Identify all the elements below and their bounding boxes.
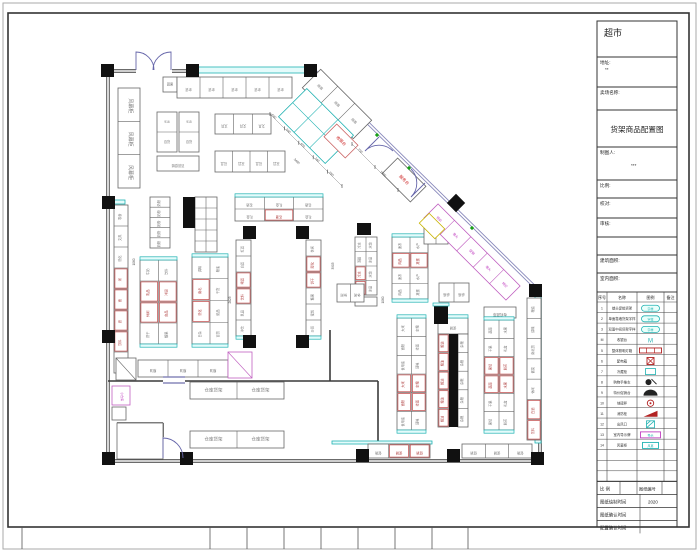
legend-header: 备注 — [667, 294, 675, 300]
shelf-label: 乳品 — [240, 310, 245, 316]
shelf-label: 食品 — [164, 311, 169, 317]
shelf-label: 粮油 — [440, 360, 445, 366]
legend-no: 3 — [601, 328, 603, 332]
shelf-label: 礼盒 — [503, 345, 508, 352]
legend-no: 8 — [601, 380, 603, 384]
shelf-block: 百货促销 — [157, 156, 199, 171]
shelf-label: 休闲 — [310, 246, 315, 252]
shelf-label: 调味 — [197, 265, 202, 272]
shelf-label: 大米 — [400, 325, 405, 332]
shelf-label: 面粉 — [400, 343, 405, 350]
shelf-label: 乳品 — [145, 290, 150, 296]
structural-column — [180, 452, 193, 465]
shelf-label: 肉品 — [397, 258, 402, 264]
shelf-label: 饮料 — [240, 293, 245, 300]
shelf-block: 促销促销促销 — [462, 444, 532, 458]
field-value: ** — [605, 67, 609, 72]
shelf-label: 杂货 — [185, 88, 191, 93]
shelf-label: 玩具 — [237, 162, 244, 167]
dimension-text: 730 — [357, 147, 364, 154]
legend-name: 消防栓 — [617, 411, 628, 416]
shelf-label: 奶粉 — [156, 220, 161, 227]
shelf-label: 调味 — [415, 362, 420, 369]
shelf-label: 休闲 — [354, 293, 360, 298]
structural-column — [296, 226, 309, 239]
shelf-label: 礼盒 — [246, 215, 253, 220]
shelf-block: 粮油调味南北货酱菜休闲白酒饮料 — [527, 298, 541, 440]
shelf-label: 奶粉 — [156, 199, 161, 206]
shelf-label: 桌椅 — [443, 293, 450, 298]
wall-shelf-band — [197, 67, 305, 73]
shelf-label: 促销 — [395, 451, 402, 456]
door-swing — [136, 52, 154, 70]
legend-name: 特价促销台 — [614, 390, 632, 395]
shelf-block: 粮油粮油粮油粮油粮油 — [438, 334, 449, 427]
legend-no: 7 — [601, 370, 603, 374]
shelf-label: 百货促销 — [171, 164, 185, 169]
shelf-label: 杂粮 — [459, 378, 464, 385]
legend-no: 12 — [600, 423, 604, 427]
shelf-label: 礼盒 — [275, 203, 282, 208]
legend-no: 13 — [600, 433, 604, 437]
legend-name: 室内导示牌 — [614, 432, 632, 437]
shelf-label: 杂粮 — [459, 359, 464, 366]
field-label: 校对: — [600, 200, 610, 207]
shelf-label: 休闲 — [530, 387, 535, 393]
legend-no: 1 — [601, 307, 603, 311]
structural-column — [102, 196, 115, 209]
shelf-label: 饼干 — [145, 331, 150, 338]
structural-column — [531, 452, 544, 465]
legend-no: 5 — [601, 349, 603, 353]
shelf-block: 奶粉奶粉奶粉奶粉奶粉 — [150, 197, 170, 248]
legend-sym-cart — [646, 379, 652, 385]
shelf-block: 红酒白酒啤酒饮料乳品冲饮 — [236, 240, 251, 339]
shelf-block: 仓库货架仓库货架 — [190, 382, 284, 399]
shelf-block — [116, 358, 136, 380]
structural-column — [243, 335, 256, 348]
shelf-label: 粮油 — [440, 379, 445, 385]
drawing-title: 货架商品配置图 — [610, 124, 663, 134]
dimension-text: 3480 — [293, 157, 301, 165]
legend-sym-wedge — [644, 411, 658, 417]
shelf-label: 桌椅 — [458, 293, 465, 298]
tiny-label: 字样 — [647, 306, 653, 311]
shelf-block: 休闲膨化饼干糖果蜜饯炒货 — [306, 240, 321, 339]
legend-no: 14 — [600, 444, 604, 448]
shelf-label: 杂货 — [254, 88, 260, 93]
tiny-label: 导示 — [647, 432, 653, 437]
shelf-block: 服务台 — [382, 158, 426, 202]
endcap — [392, 299, 428, 302]
shelf-block: 粮油粮油粮油 — [138, 360, 228, 377]
structural-column — [447, 449, 460, 462]
endcap — [484, 430, 514, 433]
legend-table: 序号名称图例备注1端头促销货架字样2单面靠墙货架字样字样3双面中间货架字样字样M… — [597, 292, 677, 533]
shelf-label: 水果 — [503, 381, 508, 388]
shelf-label: 水饺 — [368, 270, 373, 277]
shelf-label: 面粉 — [400, 399, 405, 406]
shelf-label: 糖果 — [310, 293, 315, 300]
endcap — [397, 430, 426, 433]
structural-column — [356, 449, 369, 462]
shelf-label: 促销 — [374, 451, 381, 456]
shelf-label: 奶粉 — [156, 240, 161, 247]
shelf-block: 特价堆头促销堆头特价 — [424, 204, 520, 300]
structural-column — [304, 64, 317, 77]
shelf-label: 洗化 — [117, 255, 122, 262]
door-swing — [153, 52, 171, 70]
shelf-label: 纸品 — [215, 309, 220, 315]
shelf-label: 鲜花 — [503, 418, 508, 425]
legend-name: 双面中间货架字样 — [608, 327, 636, 332]
shelf-label: 杂货 — [277, 88, 283, 93]
legend-sym-m: M — [648, 338, 653, 344]
shelf-label: 速冻 — [397, 273, 402, 280]
shelf-label: 916 — [164, 120, 170, 124]
shelf-label: 禽蛋 — [415, 257, 420, 264]
shelf-label: 冲饮 — [240, 325, 245, 332]
sheet-no-label: 图纸编号 — [639, 485, 656, 492]
structural-column — [186, 64, 199, 77]
shelf-label: 粮油 — [215, 266, 220, 272]
shelf-label: 风幕柜 — [127, 165, 134, 180]
legend-no: 11 — [600, 412, 604, 416]
endcap — [235, 194, 323, 197]
endcap — [140, 344, 177, 347]
legend-header: 序号 — [598, 294, 606, 300]
shelf-label: 礼盒 — [503, 400, 508, 407]
shelf-label: 饮料 — [117, 339, 122, 346]
structural-column — [102, 452, 115, 465]
shelf-outline — [112, 407, 126, 420]
floor-plan: 蔬果杂货杂货杂货杂货杂货916百货915百货百货促销文具文具文具玩具玩具玩具玩具… — [101, 52, 544, 465]
field-label: 建筑面积: — [600, 257, 620, 264]
shelf-block: 风幕柜风幕柜风幕柜 — [118, 88, 140, 188]
shelf-outline — [138, 360, 228, 377]
legend-name: 端头促销货架 — [612, 306, 633, 311]
shelf-block: 休闲休闲 — [337, 284, 364, 302]
legend-sym-lightbox — [640, 348, 662, 353]
endcap — [192, 344, 228, 347]
shelf-label: 休闲 — [145, 311, 150, 317]
endcap — [192, 254, 228, 257]
legend-name: 整体照明灯箱 — [612, 348, 633, 353]
shelf-label: 冰品 — [368, 257, 373, 263]
shelf-block: 文具文具文具 — [215, 114, 271, 134]
shelf-label: 杂粮 — [459, 415, 464, 422]
freezer-bar — [449, 334, 458, 427]
shelf-label: 文具 — [258, 124, 265, 129]
shelf-label: 白酒 — [240, 261, 245, 268]
legend-name: 配电箱 — [617, 358, 628, 363]
shelf-label: 速冻 — [397, 242, 402, 249]
structural-column-diamond — [447, 194, 465, 212]
shelf-block: 杂货杂货杂货杂货杂货 — [177, 77, 292, 98]
shelf-block: 调味粮油南北干货洗化纸品日杂百货 — [192, 254, 228, 347]
shelf-label: 小仓库 — [120, 392, 125, 401]
shelf-label: 杂粮 — [459, 396, 464, 403]
shelf-block: 大米杂粮面粉挂面食用油调味大米杂粮面粉挂面食用油调味 — [397, 315, 426, 433]
shelf-label: 百货 — [215, 331, 220, 337]
freezer-bar — [183, 197, 195, 228]
shelf-label: 水产 — [415, 243, 420, 249]
shelf-label: 饮料 — [530, 427, 535, 434]
shelf-label: 915 — [186, 120, 192, 124]
shelf-label: 红酒 — [240, 245, 245, 252]
shelf-label: 文具 — [117, 234, 122, 241]
shelf-label: 南北货 — [530, 345, 535, 355]
shelf-block — [117, 423, 163, 459]
shelf-label: 肉品 — [397, 289, 402, 295]
field-label: 制图人: — [600, 149, 615, 156]
shelf-label: 粮油 — [440, 397, 445, 403]
shelf-label: 风幕柜 — [127, 132, 134, 147]
shelf-block: 蔬菜水果干果礼盒果切鲜花蔬菜水果干果礼盒果切鲜花 — [484, 317, 514, 433]
shelf-block: 速冻水产肉品禽蛋速冻水产肉品禽蛋 — [392, 234, 428, 302]
shelf-label: 调味 — [530, 326, 535, 333]
shelf-label: 牛奶 — [145, 269, 150, 275]
store-name: 超市 — [604, 27, 622, 38]
shelf-block — [228, 352, 252, 378]
shelf-block: 916百货 — [157, 112, 177, 152]
legend-name: 单面靠墙货架字样 — [608, 316, 636, 321]
shelf-label: 玩具 — [255, 162, 262, 167]
shelf-label: 炒货 — [310, 326, 315, 332]
footer-label: 配置确认时间 — [600, 524, 626, 531]
shelf-label: 名酒 — [275, 215, 282, 220]
legend-name: 出风口 — [617, 422, 627, 427]
shelf-label: 干果 — [488, 345, 493, 352]
shelf-label: 大米 — [400, 381, 405, 388]
shelf-label: 促销 — [470, 451, 477, 456]
shelf-label: 饮料 — [164, 268, 169, 275]
shelf-label: 挂面 — [415, 400, 420, 406]
shelf-block: 仓库货架仓库货架 — [190, 431, 284, 448]
structural-column — [296, 335, 309, 348]
shelf-label: 日杂 — [197, 330, 202, 337]
dimension-text: 3905 — [331, 262, 335, 269]
shelf-label: 面 — [118, 299, 122, 302]
shelf-label: 粮油 — [180, 369, 186, 374]
shelf-label: 杂粮 — [415, 325, 420, 332]
endcap — [397, 315, 426, 318]
footer-value: 2020 — [648, 499, 658, 504]
shelf-label: 冷冻 — [357, 270, 362, 277]
legend-name: 冷藏柜 — [617, 369, 628, 374]
legend-no: 2 — [601, 317, 603, 321]
shelf-label: 礼盒 — [304, 215, 311, 220]
legend-no: M — [601, 338, 604, 342]
shelf-outline — [157, 156, 199, 171]
shelf-label: 水饺 — [368, 241, 373, 248]
shelf-label: 促销 — [449, 326, 456, 331]
shelf-label: 促销 — [416, 451, 423, 456]
shelf-label: 食用油 — [400, 361, 405, 371]
shelf-label: 鲜花 — [503, 363, 508, 370]
dimension-text: 1060 — [381, 296, 385, 303]
field-value: *** — [631, 163, 637, 168]
shelf-label: 杂货 — [231, 88, 237, 93]
shelf-label: 杂货 — [208, 88, 214, 93]
shelf-label: 名酒 — [246, 203, 253, 208]
shelf-label: 仓库货架 — [252, 387, 270, 394]
field-label: 地址: — [600, 59, 610, 65]
endcap — [392, 234, 428, 237]
shelf-label: 促销 — [516, 451, 523, 456]
shelf-label: 禽蛋 — [415, 288, 420, 295]
shelf-label: 糖果 — [164, 331, 169, 338]
drawing-sheet: 蔬果杂货杂货杂货杂货杂货916百货915百货百货促销文具文具文具玩具玩具玩具玩具… — [0, 0, 700, 555]
shelf-label: 粮油 — [210, 369, 216, 374]
shelf-block — [112, 407, 126, 420]
shelf-label: 仓库货架 — [252, 436, 270, 443]
field-label: 审核: — [600, 220, 610, 227]
shelf-label: 调味 — [415, 418, 420, 425]
shelf-label: 果切 — [488, 419, 493, 425]
shelf-block: 牛奶饮料乳品冲调休闲食品饼干糖果 — [140, 257, 177, 347]
legend-sym-dome — [644, 390, 658, 396]
shelf-block: 玩具玩具玩具玩具 — [215, 151, 285, 172]
shelf-label: 冲调 — [164, 290, 169, 296]
shelf-block: 名酒礼盒名酒礼盒名酒礼盒 — [235, 194, 323, 221]
shelf-label: 玩具 — [272, 162, 279, 167]
shelf-label: 杂粮 — [459, 341, 464, 348]
structural-column — [434, 306, 448, 324]
shelf-label: 果切 — [488, 364, 493, 370]
shelf-label: 膨化 — [310, 261, 315, 268]
shelf-label: 蔬果 — [167, 82, 174, 87]
endcap — [140, 257, 177, 260]
shelf-label: 杂粮 — [415, 381, 420, 388]
shelf-block: 零食文具洗化米面酒饮料日配 — [114, 205, 128, 373]
legend-no: 9 — [601, 391, 603, 395]
shelf-label: 冰品 — [368, 286, 373, 292]
shelf-label: 玩具 — [220, 162, 227, 167]
shelf-block: 有机蔬菜 — [484, 307, 516, 318]
shelf-label: 休闲 — [341, 293, 347, 298]
legend-sym-coldbox — [646, 369, 656, 375]
shelf-label: 百货 — [186, 139, 192, 144]
structural-column — [529, 284, 542, 297]
column-cap — [433, 303, 449, 306]
freezer-bar — [357, 223, 371, 235]
shelf-label: 酱菜 — [530, 366, 535, 373]
dimension-text: 650 — [328, 171, 335, 178]
shelf-label: 干果 — [488, 400, 493, 407]
shelf-label: 汤圆 — [357, 257, 362, 263]
inner-border — [8, 13, 689, 527]
shelf-label: 白酒 — [530, 407, 535, 414]
sheet-canvas: 蔬果杂货杂货杂货杂货杂货916百货915百货百货促销文具文具文具玩具玩具玩具玩具… — [0, 0, 700, 555]
shelf-block: 小仓库 — [112, 386, 130, 405]
legend-no: 10 — [600, 402, 604, 406]
shelf-label: 奶粉 — [156, 210, 161, 217]
shelf-block: 915百货 — [179, 112, 199, 152]
shelf-label: 零食 — [117, 213, 122, 220]
shelf-label: 仓库货架 — [205, 436, 223, 443]
structural-column — [102, 330, 115, 343]
tiny-label: 风幕 — [647, 443, 653, 448]
shelf-label: 粮油 — [440, 341, 445, 347]
shelf-label: 蔬菜 — [488, 326, 493, 333]
field-label: 室内面积: — [600, 275, 620, 282]
shelf-label: 粮油 — [440, 416, 445, 422]
shelf-label: 洗化 — [197, 309, 202, 316]
legend-name: 风幕柜 — [617, 443, 628, 448]
shelf-outline — [177, 77, 292, 98]
shelf-label: 南北 — [197, 287, 202, 294]
structural-column — [101, 64, 114, 77]
scale-label: 比 例 — [600, 485, 611, 492]
shelf-label: 水果 — [503, 326, 508, 333]
shelf-block: 杂粮杂粮杂粮杂粮杂粮 — [458, 334, 468, 427]
footer-label: 图纸绘制时间 — [600, 498, 626, 505]
shelf-outline — [117, 423, 163, 459]
field-label: 卖场名称: — [600, 89, 620, 96]
wall-shelf-band — [332, 441, 432, 444]
endcap — [484, 317, 514, 320]
dimension-text: 640 — [271, 113, 278, 120]
field-label: 比例: — [600, 182, 610, 189]
shelf-outline — [215, 114, 271, 134]
shelf-label: 粮油 — [150, 369, 156, 374]
shelf-block: 促销促销促销 — [368, 444, 430, 458]
footer-label: 图纸确认时间 — [600, 511, 626, 518]
shelf-block: 桌椅桌椅 — [439, 283, 469, 302]
shelf-label: 挂面 — [415, 344, 420, 350]
legend-no: 6 — [601, 359, 603, 363]
shelf-block — [195, 197, 217, 252]
shelf-label: 粮油 — [530, 306, 535, 312]
legend-name: 收银台 — [617, 337, 628, 342]
shelf-label: 文具 — [239, 124, 246, 129]
legend-header: 图例 — [647, 294, 655, 300]
shelf-label: 冷冻 — [357, 241, 362, 248]
shelf-label: 奶粉 — [156, 230, 161, 237]
dimension-text: 1060 — [132, 258, 136, 265]
tiny-label: 字样 — [647, 327, 653, 332]
shelf-block: 蔬果 — [163, 77, 177, 92]
shelf-label: 风幕柜 — [127, 98, 134, 113]
shelf-label: 饼干 — [310, 277, 315, 284]
shelf-label: 蔬菜 — [488, 381, 493, 388]
shelf-label: 百货 — [164, 139, 170, 144]
shelf-label: 干货 — [215, 288, 220, 294]
shelf-label: 文具 — [220, 124, 227, 129]
shelf-label: 啤酒 — [240, 277, 245, 284]
shelf-label: 蜜饯 — [310, 309, 315, 316]
legend-name: 购物手推车 — [614, 379, 632, 384]
shelf-label: 仓库货架 — [205, 387, 223, 394]
shelf-label: 水产 — [415, 274, 420, 280]
legend-name: 地磅秤 — [617, 401, 628, 406]
structural-column — [243, 226, 256, 239]
tiny-label: 字样 — [647, 316, 653, 321]
shelf-label: 食用油 — [400, 417, 405, 427]
shelf-label: 名酒 — [304, 203, 311, 208]
dimension-text: 2625 — [228, 296, 232, 303]
shelf-label: 促销 — [493, 451, 500, 456]
legend-header: 名称 — [618, 294, 626, 300]
